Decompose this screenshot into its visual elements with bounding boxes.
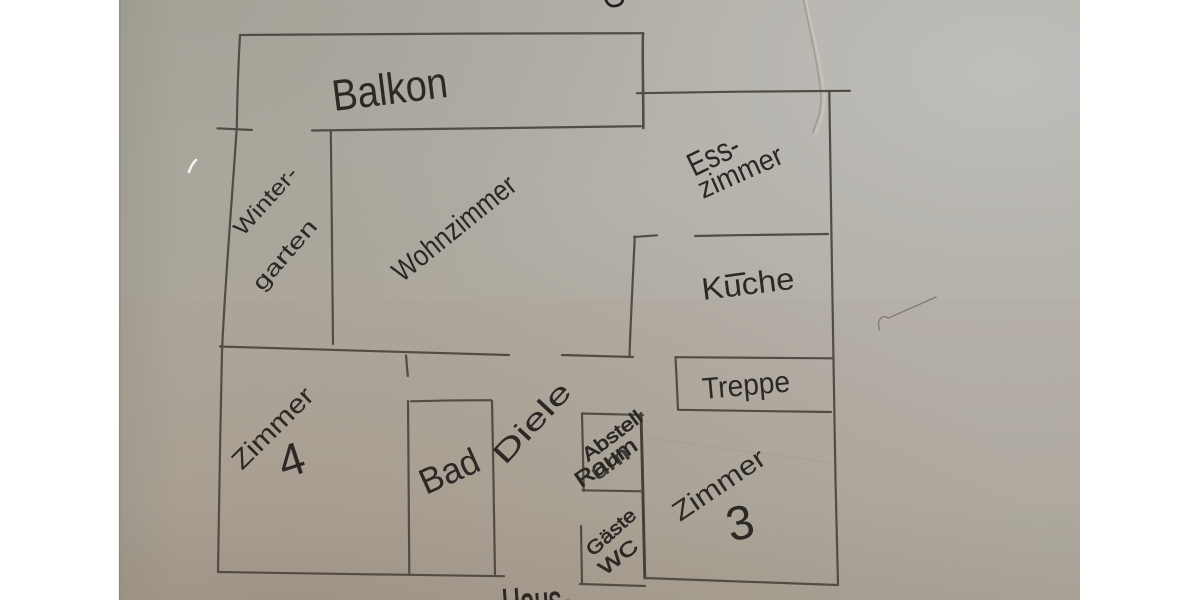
- svg-text:Haus-: Haus-: [501, 577, 572, 600]
